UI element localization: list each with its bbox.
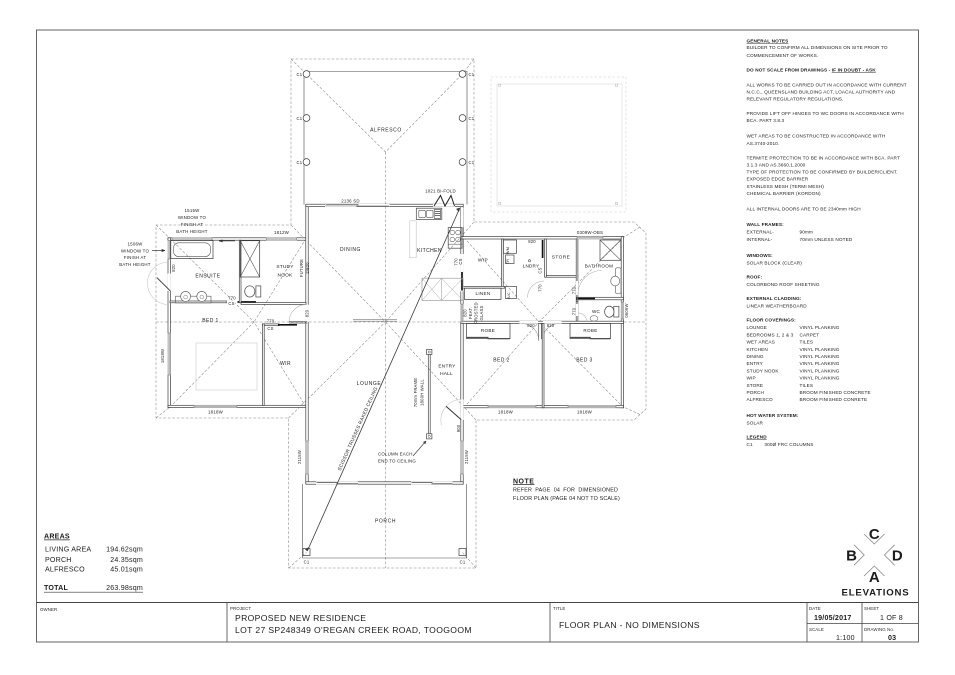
svg-text:BATH HEIGHT: BATH HEIGHT	[176, 229, 208, 234]
svg-text:WET AREAS: WET AREAS	[747, 340, 775, 345]
svg-text:NOTE: NOTE	[513, 478, 534, 485]
svg-text:TOTAL: TOTAL	[44, 584, 68, 592]
svg-text:1818W: 1818W	[577, 410, 593, 415]
svg-text:WALL FRAMES:: WALL FRAMES:	[747, 222, 785, 227]
svg-text:BUILDER TO CONFIRM ALL DIMENSI: BUILDER TO CONFIRM ALL DIMENSIONS ON SIT…	[747, 45, 888, 50]
svg-text:BED 2: BED 2	[493, 358, 509, 364]
svg-text:RELEVANT REGULATORY REGULATION: RELEVANT REGULATORY REGULATIONS.	[747, 97, 844, 102]
svg-text:ENTRY: ENTRY	[747, 361, 764, 366]
svg-text:C1: C1	[469, 116, 475, 121]
svg-text:C1: C1	[460, 560, 466, 565]
svg-text:1515W: 1515W	[185, 208, 201, 213]
svg-text:BEDROOMS 1, 2 & 3: BEDROOMS 1, 2 & 3	[747, 332, 794, 337]
svg-text:INTERNAL-: INTERNAL-	[747, 237, 773, 242]
svg-text:END TO CEILING: END TO CEILING	[378, 459, 416, 464]
svg-text:COLUMN EACH: COLUMN EACH	[378, 452, 413, 457]
svg-text:70mm UNLESS NOTED: 70mm UNLESS NOTED	[800, 237, 853, 242]
svg-text:KITCHEN: KITCHEN	[747, 347, 768, 352]
svg-text:1818W: 1818W	[160, 349, 165, 363]
svg-text:WC: WC	[592, 309, 601, 314]
svg-text:WIP: WIP	[747, 376, 756, 381]
svg-text:ALFRESCO: ALFRESCO	[747, 397, 773, 402]
svg-text:2136 SD: 2136 SD	[341, 198, 360, 203]
svg-text:BROOM FINISHED CONCRETE: BROOM FINISHED CONCRETE	[800, 390, 871, 395]
svg-text:B: B	[846, 548, 857, 565]
svg-text:CS: CS	[228, 301, 234, 306]
svg-text:BCA. PART 3.8.3: BCA. PART 3.8.3	[747, 118, 785, 123]
svg-text:45.01sqm: 45.01sqm	[110, 566, 143, 574]
svg-text:BED 1: BED 1	[202, 318, 218, 324]
svg-text:STORE: STORE	[747, 383, 764, 388]
svg-text:C1: C1	[469, 160, 475, 165]
svg-text:770: 770	[538, 284, 543, 292]
svg-text:NOOK: NOOK	[278, 273, 294, 279]
svg-text:C1: C1	[304, 560, 310, 565]
svg-text:D: D	[892, 548, 903, 565]
svg-text:VINYL PLANKING: VINYL PLANKING	[800, 325, 840, 330]
svg-text:SCALE: SCALE	[809, 627, 824, 632]
svg-text:C1: C1	[747, 442, 754, 447]
svg-text:WINDOW TO: WINDOW TO	[121, 248, 150, 253]
svg-text:FINISH AT: FINISH AT	[181, 222, 204, 227]
svg-text:194.62sqm: 194.62sqm	[106, 545, 143, 553]
svg-text:770: 770	[267, 319, 275, 324]
svg-text:DINING: DINING	[340, 247, 361, 253]
svg-text:1506W: 1506W	[128, 242, 144, 247]
svg-text:ALFRESCO: ALFRESCO	[45, 566, 85, 574]
svg-text:HALL: HALL	[440, 371, 453, 377]
svg-text:C1: C1	[297, 160, 303, 165]
svg-text:1800H WALL: 1800H WALL	[420, 379, 425, 406]
svg-text:CARPET: CARPET	[800, 332, 820, 337]
svg-text:1812W: 1812W	[274, 230, 290, 235]
svg-text:C1: C1	[297, 72, 303, 77]
svg-text:70mm FRAME: 70mm FRAME	[413, 378, 418, 407]
svg-text:WINDOW TO: WINDOW TO	[178, 215, 207, 220]
svg-text:820: 820	[171, 264, 176, 272]
svg-text:TITLE: TITLE	[553, 606, 565, 611]
svg-text:820: 820	[547, 323, 555, 328]
svg-text:ROBE: ROBE	[481, 328, 495, 333]
svg-text:ENSUITE: ENSUITE	[195, 274, 220, 280]
svg-text:CS: CS	[267, 326, 273, 331]
svg-text:ALL WORKS TO BE CARRIED OUT IN: ALL WORKS TO BE CARRIED OUT IN ACCORDANC…	[747, 82, 907, 87]
svg-text:COLORBOND ROOF SHEETING: COLORBOND ROOF SHEETING	[747, 282, 820, 287]
svg-text:STUDY: STUDY	[276, 264, 294, 270]
svg-text:VINYL PLANKING: VINYL PLANKING	[800, 347, 840, 352]
svg-text:EXTERNAL CLADDING:: EXTERNAL CLADDING:	[747, 296, 802, 301]
svg-text:FLOOR COVERINGS:: FLOOR COVERINGS:	[747, 318, 797, 323]
svg-text:C1: C1	[297, 116, 303, 121]
svg-text:FLOOR PLAN - NO DIMENSIONS: FLOOR PLAN - NO DIMENSIONS	[559, 620, 700, 630]
svg-text:770: 770	[572, 286, 577, 294]
svg-text:TILES: TILES	[800, 383, 814, 388]
svg-text:24.35sqm: 24.35sqm	[110, 556, 143, 564]
svg-text:90mm: 90mm	[800, 230, 814, 235]
svg-text:SHEET: SHEET	[864, 606, 879, 611]
svg-text:TR: TR	[506, 259, 510, 265]
svg-text:WIR: WIR	[280, 361, 291, 367]
svg-text:770: 770	[572, 307, 577, 315]
svg-text:820: 820	[527, 323, 535, 328]
svg-text:VINYL PLANKING: VINYL PLANKING	[800, 354, 840, 359]
svg-text:PROJECT: PROJECT	[230, 606, 251, 611]
svg-text:FROSTED: FROSTED	[474, 302, 479, 323]
svg-text:FINISH AT: FINISH AT	[124, 255, 147, 260]
svg-text:1818W: 1818W	[498, 410, 514, 415]
svg-text:BED 3: BED 3	[576, 358, 592, 364]
svg-text:19/05/2017: 19/05/2017	[814, 614, 852, 622]
svg-text:DO NOT SCALE FROM DRAWINGS - I: DO NOT SCALE FROM DRAWINGS - IF IN DOUBT…	[747, 67, 877, 72]
svg-text:2115W: 2115W	[297, 450, 302, 464]
svg-text:1021 BI-FOLD: 1021 BI-FOLD	[425, 189, 456, 194]
svg-text:2115W: 2115W	[464, 450, 469, 464]
svg-text:LOUNGE: LOUNGE	[357, 381, 382, 387]
svg-text:LEGEND: LEGEND	[747, 435, 768, 440]
svg-text:820: 820	[463, 309, 468, 317]
svg-text:0606W: 0606W	[624, 303, 629, 317]
svg-text:PORCH: PORCH	[375, 519, 396, 525]
svg-text:A: A	[869, 569, 880, 586]
svg-text:263.98sqm: 263.98sqm	[106, 584, 143, 592]
svg-text:OWNER: OWNER	[40, 607, 57, 612]
svg-text:LOUNGE: LOUNGE	[747, 325, 768, 330]
svg-text:TERMITE PROTECTION TO BE IN AC: TERMITE PROTECTION TO BE IN ACCORDANCE W…	[747, 155, 900, 160]
svg-text:SOLAR BLOCK (CLEAR): SOLAR BLOCK (CLEAR)	[747, 261, 803, 266]
svg-text:820: 820	[528, 239, 536, 244]
svg-text:LIVING AREA: LIVING AREA	[45, 545, 91, 553]
svg-text:ELEVATIONS: ELEVATIONS	[842, 588, 910, 599]
svg-text:C: C	[869, 526, 880, 543]
svg-text:1818W: 1818W	[208, 410, 224, 415]
svg-text:820: 820	[304, 309, 309, 317]
svg-text:SOLAR: SOLAR	[747, 420, 764, 425]
svg-text:ALFRESCO: ALFRESCO	[370, 128, 402, 134]
svg-text:WIP: WIP	[478, 258, 488, 264]
svg-text:PROPOSED NEW RESIDENCE: PROPOSED NEW RESIDENCE	[235, 613, 366, 623]
svg-text:N.C.C., QUEENSLAND BUILDING AC: N.C.C., QUEENSLAND BUILDING ACT, LOACAL …	[747, 90, 896, 95]
svg-text:03: 03	[888, 634, 896, 642]
svg-text:STORE: STORE	[552, 255, 570, 261]
svg-text:900: 900	[456, 424, 461, 432]
svg-text:LINEAR WEATHERBOARD: LINEAR WEATHERBOARD	[747, 304, 808, 309]
svg-text:1:100: 1:100	[836, 634, 855, 642]
svg-text:FLOOR PLAN (PAGE 04 NOT TO SCA: FLOOR PLAN (PAGE 04 NOT TO SCALE)	[513, 496, 620, 502]
svg-text:770: 770	[228, 295, 236, 300]
svg-text:EXPOSED EDGE BARRIER: EXPOSED EDGE BARRIER	[747, 177, 809, 182]
svg-text:300Ø FRC COLUMNS: 300Ø FRC COLUMNS	[763, 442, 814, 447]
svg-text:STUDY NOOK: STUDY NOOK	[747, 368, 780, 373]
svg-text:FUTURE: FUTURE	[299, 259, 304, 277]
svg-text:PORCH: PORCH	[747, 390, 765, 395]
svg-text:PORCH: PORCH	[45, 556, 72, 564]
svg-text:B/C: B/C	[507, 292, 511, 299]
svg-text:1 OF 8: 1 OF 8	[880, 614, 903, 622]
svg-text:3.1.3 AND AS.3660.1.2000: 3.1.3 AND AS.3660.1.2000	[747, 162, 806, 167]
svg-text:0309W-OBS: 0309W-OBS	[577, 230, 603, 235]
svg-text:EXTERNAL-: EXTERNAL-	[747, 230, 775, 235]
svg-text:VINYL PLANKING: VINYL PLANKING	[800, 376, 840, 381]
svg-text:2/820: 2/820	[305, 262, 310, 274]
svg-text:LINEN: LINEN	[475, 291, 490, 296]
svg-text:VINYL PLANKING: VINYL PLANKING	[800, 368, 840, 373]
svg-text:GENERAL NOTES: GENERAL NOTES	[747, 38, 789, 43]
svg-text:WINDOWS:: WINDOWS:	[747, 253, 774, 258]
svg-text:BATHROOM: BATHROOM	[585, 264, 614, 269]
svg-text:COMMENCEMENT OF WORKS.: COMMENCEMENT OF WORKS.	[747, 53, 819, 58]
svg-text:BATH HEIGHT: BATH HEIGHT	[119, 262, 151, 267]
svg-text:VINYL PLANKING: VINYL PLANKING	[800, 361, 840, 366]
svg-text:ENTRY: ENTRY	[438, 363, 456, 369]
svg-text:ALL INTERNAL DOORS ARE TO BE 2: ALL INTERNAL DOORS ARE TO BE 2340mm HIGH	[747, 207, 861, 212]
svg-text:ROBE: ROBE	[583, 328, 597, 333]
svg-text:DRAWING No.: DRAWING No.	[864, 627, 894, 632]
svg-text:AREAS: AREAS	[44, 533, 70, 541]
svg-text:LNDRY: LNDRY	[523, 264, 540, 269]
svg-text:HOT WATER SYSTEM:: HOT WATER SYSTEM:	[747, 413, 799, 418]
svg-text:TYPE OF PROTECTION TO BE CONFI: TYPE OF PROTECTION TO BE CONFIRMED BY BU…	[747, 170, 898, 175]
svg-text:STAINLESS MESH (TERMI MESH): STAINLESS MESH (TERMI MESH)	[747, 184, 825, 189]
svg-text:CHEMICAL BARRIER (KORDON): CHEMICAL BARRIER (KORDON)	[747, 191, 822, 196]
svg-text:REFER PAGE 04 FOR DIMENSIO: REFER PAGE 04 FOR DIMENSIONED	[513, 488, 618, 494]
svg-text:DINING: DINING	[747, 354, 764, 359]
svg-text:WM: WM	[506, 247, 510, 254]
svg-text:ROOF:: ROOF:	[747, 275, 763, 280]
svg-text:WET AREAS TO BE CONSTRUCTED IN: WET AREAS TO BE CONSTRUCTED IN ACCORDANC…	[747, 134, 886, 139]
svg-text:LOT 27 SP248349 O'REGAN CREEK: LOT 27 SP248349 O'REGAN CREEK ROAD, TOOG…	[235, 625, 472, 635]
svg-text:BROOM FINISHED CONRETE: BROOM FINISHED CONRETE	[800, 397, 868, 402]
svg-text:C1: C1	[469, 72, 475, 77]
svg-text:FEAT.: FEAT.	[468, 307, 473, 319]
svg-text:TILES: TILES	[800, 340, 814, 345]
svg-text:PROVIDE LIFT OFF HINGES TO WC: PROVIDE LIFT OFF HINGES TO WC DOORS IN A…	[747, 111, 904, 116]
svg-text:KITCHEN: KITCHEN	[417, 248, 442, 254]
svg-text:GLASS: GLASS	[479, 306, 484, 321]
svg-text:AS.3740-2010.: AS.3740-2010.	[747, 141, 780, 146]
svg-text:CS: CS	[458, 258, 463, 264]
svg-text:DATE: DATE	[809, 606, 821, 611]
